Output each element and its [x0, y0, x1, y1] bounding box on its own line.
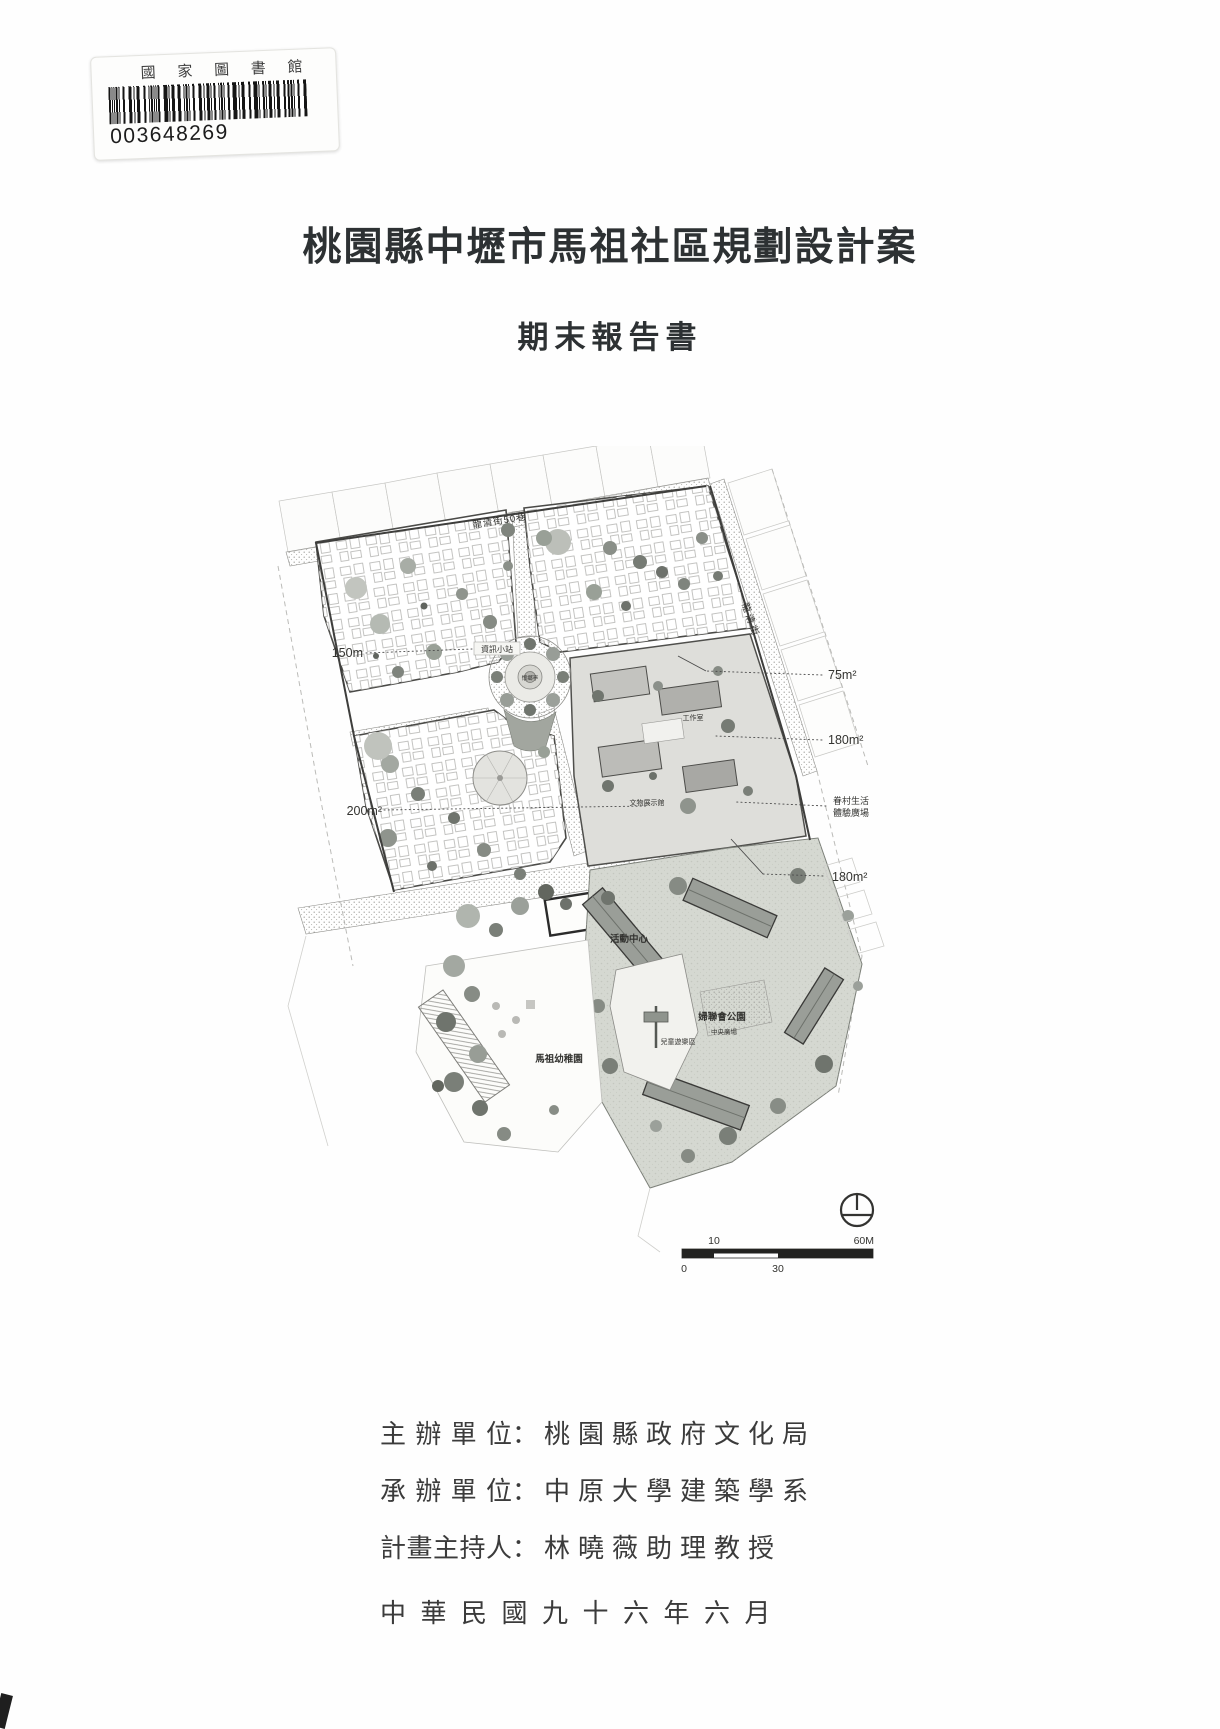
barcode-number: 003648269 — [110, 120, 229, 149]
credit-date: 中華民國九十六年六月 — [380, 1593, 816, 1630]
barcode-image — [108, 79, 307, 124]
annotation-village-plaza-line1: 眷村生活 — [833, 795, 869, 806]
scan-artifact — [0, 1693, 13, 1729]
credit-line-organizer: 主辦單位：桃園縣政府文化局 — [380, 1414, 816, 1471]
label-activity-center: 活動中心 — [610, 933, 649, 945]
label-central-plaza: 中央廣場 — [711, 1027, 738, 1036]
annotation-180m2-b: 180m² — [832, 870, 867, 884]
credit-value: 林曉薇助理教授 — [544, 1528, 782, 1565]
library-sticker: 國 家 圖 書 館 003648269 — [90, 47, 340, 161]
kindergarten-area — [416, 897, 602, 1152]
credit-label: 主辦單位 — [380, 1414, 512, 1451]
north-indicator-icon — [841, 1194, 873, 1226]
scale-label-30: 30 — [772, 1263, 784, 1275]
scale-label-10: 10 — [708, 1235, 720, 1247]
library-name: 國 家 圖 書 館 — [131, 55, 312, 83]
label-kindergarten: 馬祖幼稚園 — [534, 1053, 583, 1065]
credit-label: 計畫主持人 — [380, 1528, 512, 1565]
credit-colon: ： — [512, 1528, 538, 1565]
annotation-village-plaza-line2: 體驗廣場 — [833, 807, 869, 818]
credits-block: 主辦單位：桃園縣政府文化局 承辦單位：中原大學建築學系 計畫主持人：林曉薇助理教… — [380, 1414, 816, 1630]
page-title: 桃園縣中壢市馬祖社區規劃設計案 — [0, 216, 1220, 272]
annotation-150m: 150m — [332, 646, 363, 660]
credit-value: 桃園縣政府文化局 — [544, 1414, 816, 1451]
credit-colon: ： — [512, 1414, 538, 1451]
scale-label-0: 0 — [681, 1263, 687, 1275]
annotation-180m2-a: 180m² — [828, 733, 863, 747]
label-park: 婦聯會公園 — [697, 1011, 746, 1023]
label-workshop: 工作室 — [683, 713, 704, 722]
annotation-200m2: 200m² — [347, 804, 382, 818]
credit-value: 中原大學建築學系 — [544, 1471, 816, 1508]
credit-line-contractor: 承辦單位：中原大學建築學系 — [380, 1471, 816, 1528]
site-plan-figure: 龍清街50巷 龍清街 資訊小站 懷鄉亭 工作室 文物展示館 活動中心 馬祖幼稚園… — [258, 446, 890, 1288]
label-artifact-hall: 文物展示館 — [630, 798, 665, 807]
credit-label: 承辦單位 — [380, 1471, 512, 1508]
credit-line-principal: 計畫主持人：林曉薇助理教授 — [380, 1528, 816, 1585]
credit-colon: ： — [512, 1471, 538, 1508]
scale-label-60m: 60M — [854, 1235, 874, 1247]
annotation-75m2: 75m² — [828, 668, 856, 682]
scale-bar — [682, 1249, 873, 1258]
label-pavilion: 懷鄉亭 — [522, 674, 539, 682]
page-subtitle: 期末報告書 — [0, 312, 1220, 357]
label-info-station: 資訊小站 — [481, 644, 513, 654]
label-children-area: 兒童遊樂區 — [661, 1037, 696, 1046]
